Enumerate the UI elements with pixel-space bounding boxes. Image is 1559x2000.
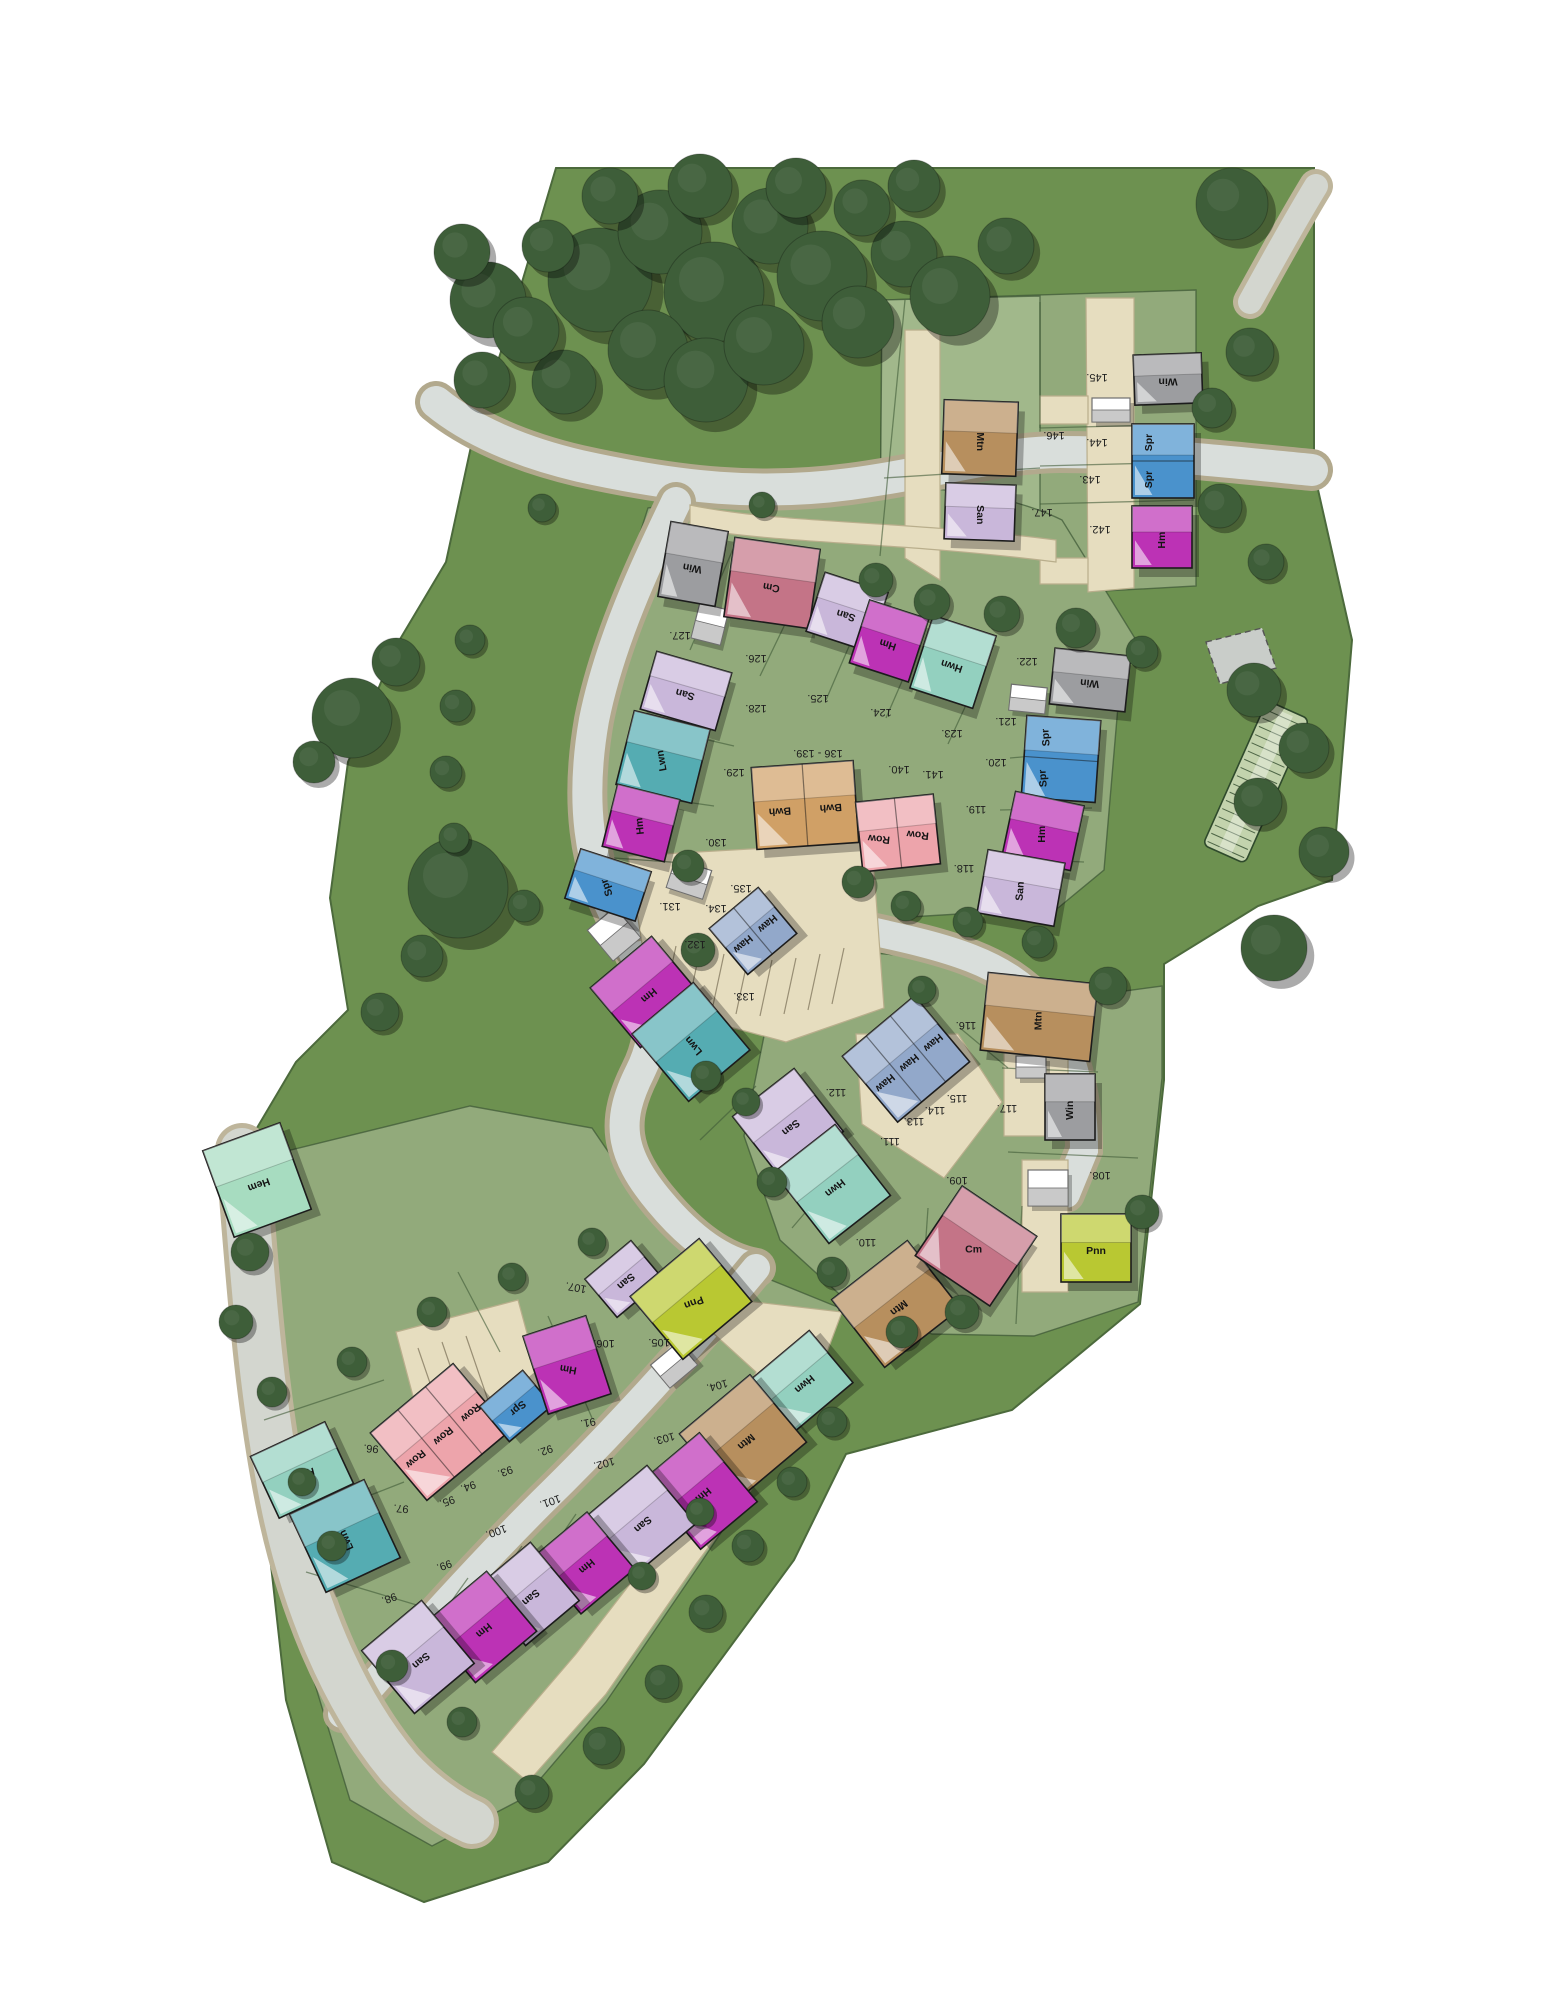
house-type-label: Win [1064,1101,1076,1120]
house-type-label: Spr [1143,471,1155,489]
tree [434,224,496,287]
plot-number-label: 147. [1031,506,1052,518]
plot-number-label: 122. [1016,655,1037,667]
plot-number-label: 130. [705,836,726,848]
plot-number-label: 105. [648,1336,669,1348]
house-win: Win [1048,648,1137,721]
house-win: Win [1045,1074,1102,1149]
house-type-label: Spr [1037,769,1050,787]
plot-number-label: 125. [807,692,828,704]
plot-number-label: 135. [730,882,751,894]
house-type-label: Hm [633,817,647,835]
plot-number-label: 128. [745,702,766,714]
house-type-label: Hm [1036,826,1048,843]
plot-number-label: 106. [593,1337,614,1349]
house-type-label: Bwh [768,804,791,818]
plot-number-label: 141. [922,768,943,780]
plot-number-label: 109. [946,1174,967,1186]
plot-number-label: 131. [659,900,680,912]
house-type-label: Hm [1156,532,1168,549]
plot-number-label: 136 - 139. [793,747,843,759]
plot-number-label: 142. [1089,523,1110,535]
plot-number-label: 118. [954,862,975,874]
garage [1008,684,1051,719]
plot-number-label: 132. [684,938,705,950]
plot-number-label: 134. [705,902,726,914]
garage [1028,1170,1072,1211]
house-type-label: Mtn [974,432,986,451]
plot-number-label: 127. [669,629,690,641]
house-type-label: Row [905,827,929,841]
driveway-court [1040,558,1088,584]
plot-number-label: 113. [904,1115,925,1127]
driveway-court [1040,396,1088,424]
plot-number-label: 108. [1089,1169,1110,1181]
plot-number-label: 119. [966,803,987,815]
house-type-label: San [1014,881,1027,901]
house-type-label: Win [1080,676,1100,690]
plot-number-label: 129. [723,766,744,778]
plot-number-label: 115. [947,1092,968,1104]
site-plan-map: MtnSanWinSprSprHmWinCmSanHmHwnWinSprSprH… [0,0,1559,2000]
house-bwh: BwhBwh [751,760,866,858]
plot-number-label: 114. [925,1104,946,1116]
house-type-label: Row [866,832,890,846]
plot-number-label: 120. [985,756,1006,768]
house-type-label: Bwh [819,801,842,815]
plot-number-label: 126. [745,652,766,664]
house-type-label: Spr [1143,434,1155,452]
plot-number-label: 124. [870,706,891,718]
plot-number-label: 121. [995,715,1016,727]
house-mtn: Mtn [979,972,1104,1071]
house-type-label: Spr [1039,728,1052,746]
site-plan-page: MtnSanWinSprSprHmWinCmSanHmHwnWinSprSprH… [0,0,1559,2000]
plot-number-label: 140. [888,763,909,775]
house-type-label: San [974,505,986,524]
plot-number-label: 123. [941,727,962,739]
plot-number-label: 111. [880,1135,900,1147]
plot-number-label: 145. [1086,371,1107,383]
plot-number-label: 112. [826,1086,847,1098]
house-row: RowRow [856,793,949,880]
plot-number-label: 144. [1086,436,1107,448]
house-spr: SprSpr [1132,424,1201,507]
plot-number-label: 133. [733,990,754,1002]
plot-number-label: 146. [1043,429,1064,441]
house-san: San [944,483,1023,551]
house-type-label: Cm [965,1243,982,1255]
garage [1092,398,1134,427]
plot-number-label: 110. [856,1236,877,1248]
plot-number-label: 96. [363,1441,379,1454]
plot-number-label: 116. [956,1019,977,1031]
plot-number-label: 143. [1079,473,1100,485]
plot-number-label: 117. [997,1102,1018,1114]
house-mtn: Mtn [941,400,1025,486]
house-type-label: Mtn [1032,1012,1044,1031]
tree [1241,915,1314,989]
house-hm: Hm [1132,506,1199,577]
house-type-label: Pnn [1086,1245,1106,1257]
house-pnn: Pnn [1061,1214,1138,1291]
house-type-label: Win [1159,376,1178,388]
house-san: San [975,850,1071,937]
plot-number-label: 97. [393,1501,409,1514]
